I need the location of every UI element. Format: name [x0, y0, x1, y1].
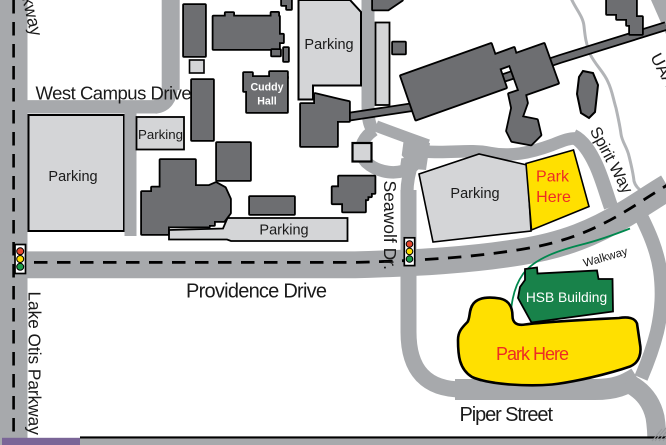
svg-text:Piper Street: Piper Street — [460, 404, 554, 426]
svg-text:Parking: Parking — [259, 223, 308, 239]
svg-text:Parking: Parking — [48, 169, 97, 185]
svg-text:Seawolf Dr.: Seawolf Dr. — [380, 181, 400, 270]
svg-text:Park Here: Park Here — [496, 344, 569, 364]
svg-text:Cuddy: Cuddy — [251, 82, 284, 94]
svg-text:Providence Drive: Providence Drive — [186, 281, 327, 303]
svg-text:Hall: Hall — [257, 96, 276, 108]
svg-text:HSB Building: HSB Building — [526, 290, 607, 305]
svg-text:Lake Otis Parkway: Lake Otis Parkway — [25, 292, 45, 436]
svg-text:West Campus Drive: West Campus Drive — [36, 83, 192, 104]
svg-text:Parking: Parking — [138, 127, 183, 142]
svg-text:Parking: Parking — [450, 186, 499, 202]
svg-text:Parking: Parking — [304, 37, 353, 53]
svg-text:Here: Here — [536, 189, 571, 206]
svg-text:Park: Park — [536, 169, 570, 186]
